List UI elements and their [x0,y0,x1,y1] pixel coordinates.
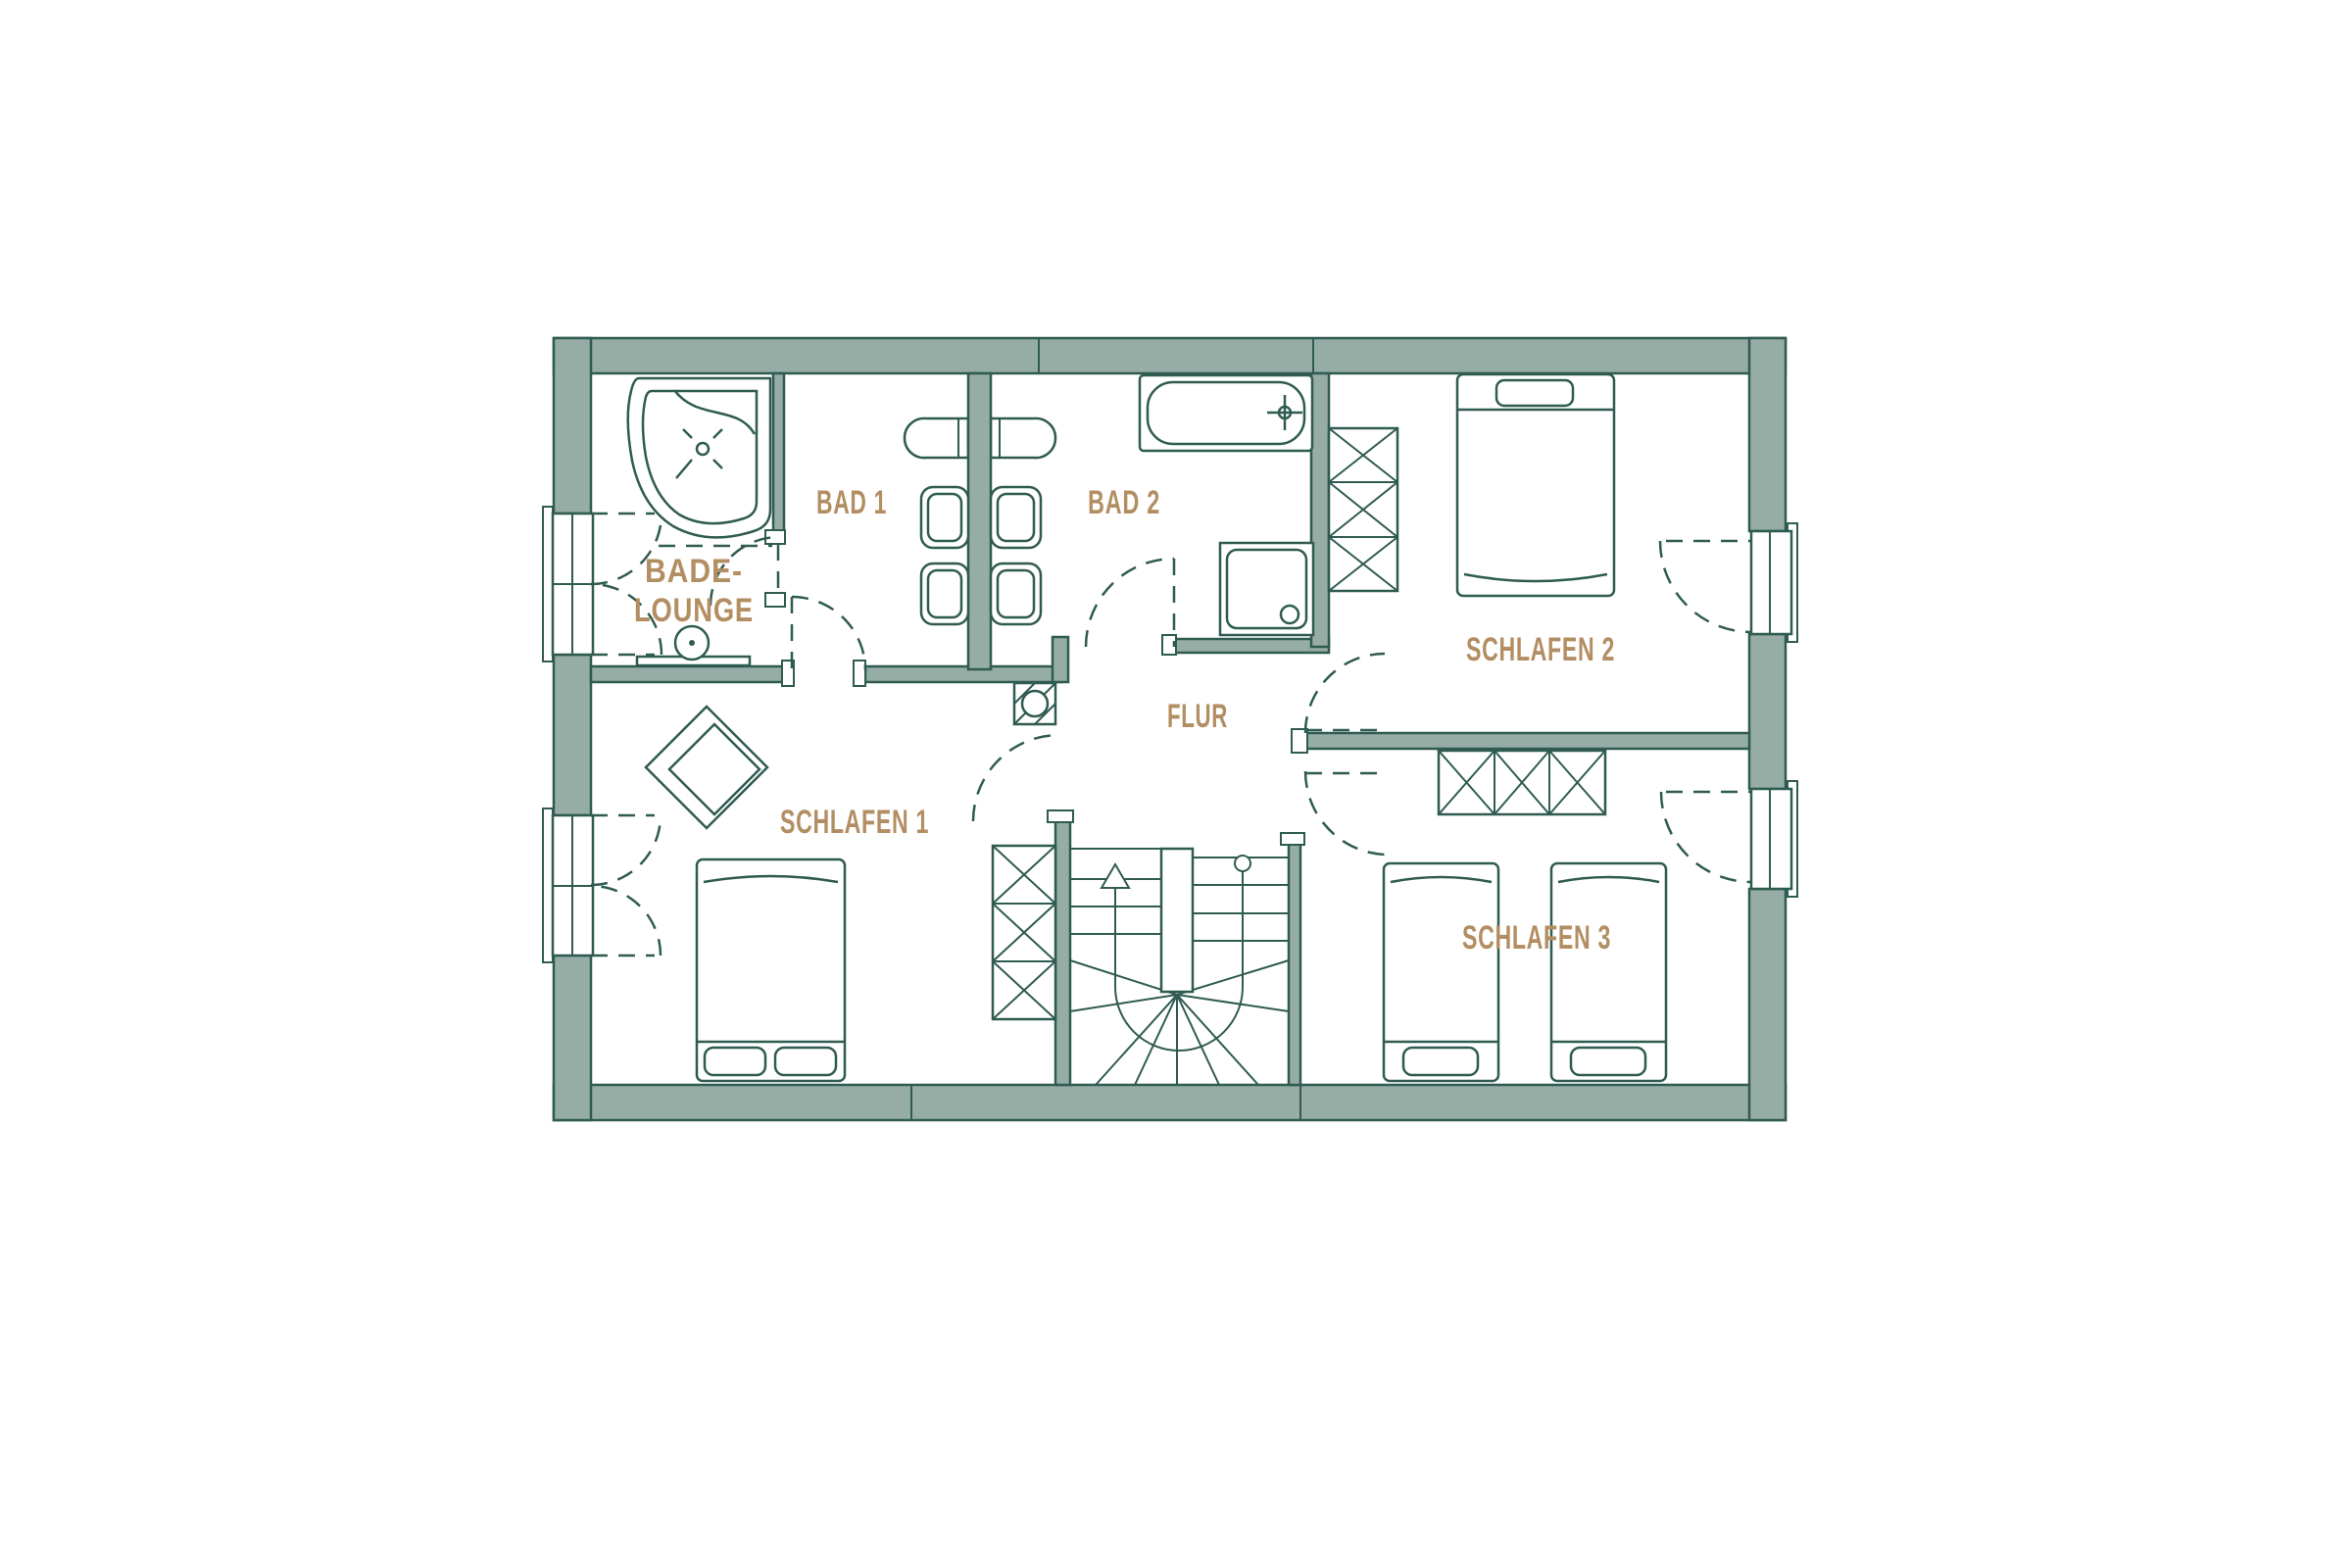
wall-schlafen2-schlafen3 [1305,733,1749,749]
winder-staircase [1070,849,1289,1085]
walking-line-arrow-up [1102,864,1129,888]
bed-pillow [775,1048,836,1075]
wall-badelounge-schlafen1 [591,666,792,682]
window-swing-arc [1660,541,1751,632]
room-label-bade-lounge-line1: BADE- [645,553,743,590]
door-arc-schlafen2 [1305,654,1385,733]
door-jamb [765,593,785,607]
floor-plan: BADE- LOUNGE BAD 1 BAD 2 FLUR SCHLAFEN 1… [0,0,2352,1568]
exterior-wall-left-upper [554,338,591,514]
pedestal-sink [637,626,750,665]
chimney [1014,683,1055,724]
room-label-flur: FLUR [1167,698,1228,735]
exterior-wall-left-lower [554,955,591,1120]
room-label-schlafen2: SCHLAFEN 2 [1466,631,1615,668]
beds-schlafen3 [1384,863,1666,1081]
bed-frame [1457,374,1614,596]
door-jamb [1048,810,1073,822]
french-window-schlafen-2 [1660,523,1797,642]
door-arc-bad1 [792,597,865,670]
wall-bad1-bad2-divider [968,373,991,669]
room-label-schlafen1: SCHLAFEN 1 [780,804,929,841]
chimney-flue [1022,691,1048,716]
exterior-wall-right-lower [1749,889,1786,1120]
armchair [646,707,767,828]
door-arc-schlafen1 [973,735,1059,821]
wall-badelounge-bad1 [773,373,784,536]
bed-pillow [1571,1048,1645,1075]
window-sill [543,808,553,962]
double-bed-schlafen1 [697,859,845,1081]
bed-pillow [1403,1048,1478,1075]
exterior-wall-top [554,338,1786,373]
bed-schlafen2 [1457,374,1614,596]
bed-pillow [705,1048,765,1075]
french-window-bade-lounge [543,507,661,661]
wardrobe-schlafen2 [1329,428,1397,591]
wall-stair-right [1289,841,1300,1085]
room-label-bad1: BAD 1 [816,484,887,521]
french-window-schlafen-1 [543,808,661,962]
room-label-schlafen3: SCHLAFEN 3 [1462,919,1611,956]
room-label-bad2: BAD 2 [1088,484,1160,521]
door-jamb [854,661,865,686]
bathtub-bad2 [1140,375,1312,451]
exterior-wall-left-middle [554,655,591,815]
wall-bad1-flur [865,666,1060,682]
door-arc-bad2 [1086,559,1174,647]
shower-tray [1220,543,1313,635]
wall-stair-left [1055,818,1070,1085]
door-jamb [1281,833,1304,845]
exterior-wall-right-middle [1749,634,1786,789]
door-arc-schlafen3 [1305,771,1385,855]
floor-plan-page: BADE- LOUNGE BAD 1 BAD 2 FLUR SCHLAFEN 1… [0,0,2352,1568]
window-swing-arc [1661,792,1751,882]
wall-bad2-flur [1174,639,1329,653]
walking-line-start [1235,856,1250,871]
armchair-outline [646,707,767,828]
window-swing-arc [591,886,661,955]
wardrobe-schlafen1 [993,846,1055,1019]
window-sill [543,507,553,661]
window-swing-arc [591,815,661,885]
exterior-wall-right-upper [1749,338,1786,531]
wardrobe-schlafen3 [1439,751,1605,814]
exterior-wall-bottom [554,1085,1786,1120]
window-frame [1751,789,1791,889]
window-frame [1751,531,1791,634]
wall-stub-flur [1053,637,1068,682]
sink-drain [689,640,695,646]
bed-pillow [1496,380,1573,406]
shower-bad2 [1220,543,1313,635]
stair-void [1161,849,1193,992]
french-window-schlafen-3 [1661,781,1797,897]
room-label-bade-lounge-line2: LOUNGE [634,592,754,629]
